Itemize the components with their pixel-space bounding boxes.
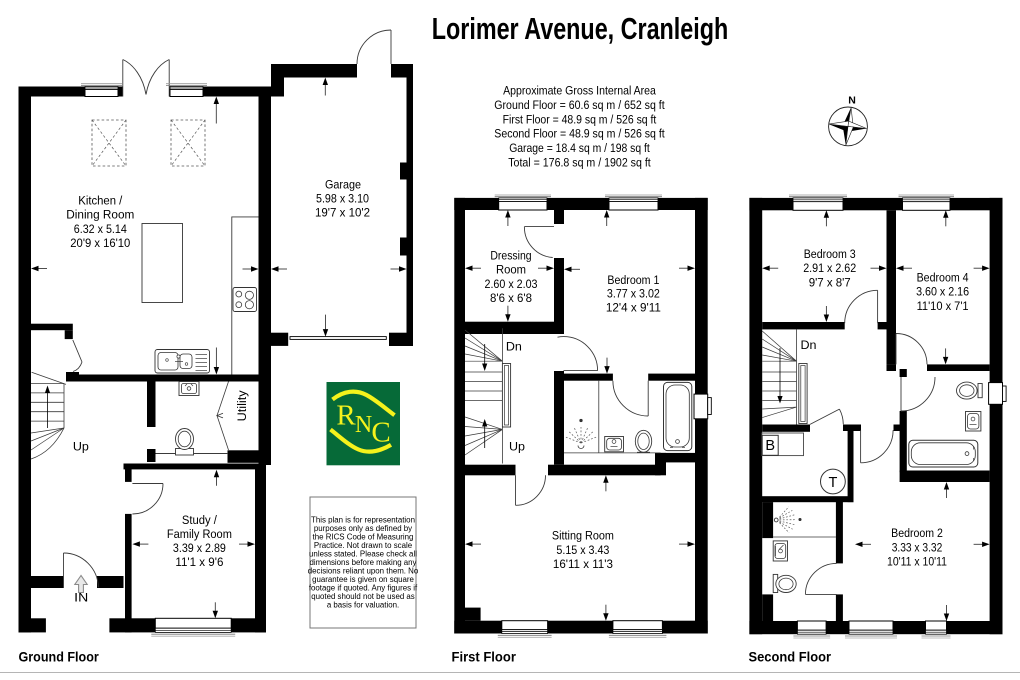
svg-text:9'7 x 8'7: 9'7 x 8'7: [809, 275, 851, 289]
svg-text:5.15 x 3.43: 5.15 x 3.43: [556, 543, 609, 557]
svg-text:6.32 x 5.14: 6.32 x 5.14: [74, 222, 127, 236]
svg-text:Garage: Garage: [325, 177, 361, 191]
svg-text:T: T: [828, 475, 837, 491]
svg-text:Bedroom 1: Bedroom 1: [607, 273, 659, 287]
svg-text:First Floor = 48.9 sq m / 526: First Floor = 48.9 sq m / 526 sq ft: [503, 112, 657, 126]
svg-text:Kitchen /: Kitchen /: [78, 193, 123, 207]
svg-text:20'9 x 16'10: 20'9 x 16'10: [70, 236, 130, 250]
svg-text:2.91 x 2.62: 2.91 x 2.62: [803, 261, 856, 275]
svg-text:a basis for valuation.: a basis for valuation.: [327, 600, 399, 609]
svg-text:3.33 x 3.32: 3.33 x 3.32: [892, 541, 943, 555]
svg-text:Dn: Dn: [506, 339, 522, 353]
svg-text:16'11 x 11'3: 16'11 x 11'3: [553, 557, 613, 571]
svg-text:Study /: Study /: [182, 513, 218, 527]
svg-text:11'10 x 7'1: 11'10 x 7'1: [917, 299, 969, 313]
svg-text:N: N: [355, 412, 372, 438]
svg-text:N: N: [848, 95, 856, 107]
svg-text:Approximate Gross Internal Are: Approximate Gross Internal Area: [503, 84, 656, 98]
svg-text:Utility: Utility: [235, 389, 249, 421]
svg-text:Ground Floor = 60.6 sq m / 652: Ground Floor = 60.6 sq m / 652 sq ft: [494, 98, 665, 112]
svg-text:Total = 176.8 sq m / 1902 sq f: Total = 176.8 sq m / 1902 sq ft: [508, 156, 651, 170]
svg-text:19'7 x 10'2: 19'7 x 10'2: [315, 206, 370, 220]
svg-text:Ground Floor: Ground Floor: [19, 650, 100, 665]
svg-text:8'6 x 6'8: 8'6 x 6'8: [490, 291, 532, 305]
svg-text:Bedroom 4: Bedroom 4: [917, 271, 969, 285]
svg-text:Family Room: Family Room: [167, 527, 232, 541]
svg-text:Bedroom 3: Bedroom 3: [804, 247, 856, 261]
svg-text:3.60 x 2.16: 3.60 x 2.16: [916, 285, 969, 299]
svg-text:Up: Up: [73, 440, 89, 454]
svg-text:Up: Up: [509, 439, 525, 453]
svg-text:Second Floor = 48.9 sq m / 526: Second Floor = 48.9 sq m / 526 sq ft: [494, 127, 665, 141]
svg-text:5.98 x 3.10: 5.98 x 3.10: [316, 192, 369, 206]
svg-text:First Floor: First Floor: [452, 650, 517, 665]
svg-text:C: C: [371, 417, 390, 449]
svg-text:R: R: [336, 400, 356, 432]
svg-text:12'4 x 9'11: 12'4 x 9'11: [606, 300, 661, 314]
svg-text:Dressing: Dressing: [490, 249, 531, 263]
svg-text:Dn: Dn: [801, 338, 817, 352]
svg-text:Garage = 18.4 sq m / 198 sq ft: Garage = 18.4 sq m / 198 sq ft: [509, 141, 650, 155]
svg-text:11'1 x 9'6: 11'1 x 9'6: [175, 555, 223, 569]
svg-text:Sitting Room: Sitting Room: [552, 529, 614, 543]
svg-text:IN: IN: [74, 591, 88, 605]
svg-text:Room: Room: [496, 263, 526, 277]
svg-text:3.77 x 3.02: 3.77 x 3.02: [607, 287, 660, 301]
svg-text:Bedroom 2: Bedroom 2: [891, 526, 943, 540]
svg-text:B: B: [765, 438, 775, 454]
svg-text:10'11 x 10'11: 10'11 x 10'11: [887, 555, 947, 569]
svg-text:Lorimer Avenue, Cranleigh: Lorimer Avenue, Cranleigh: [432, 11, 729, 46]
svg-text:Dining Room: Dining Room: [66, 208, 134, 222]
svg-text:Second Floor: Second Floor: [749, 650, 832, 665]
svg-text:2.60 x 2.03: 2.60 x 2.03: [485, 277, 538, 291]
svg-text:3.39 x 2.89: 3.39 x 2.89: [173, 541, 226, 555]
